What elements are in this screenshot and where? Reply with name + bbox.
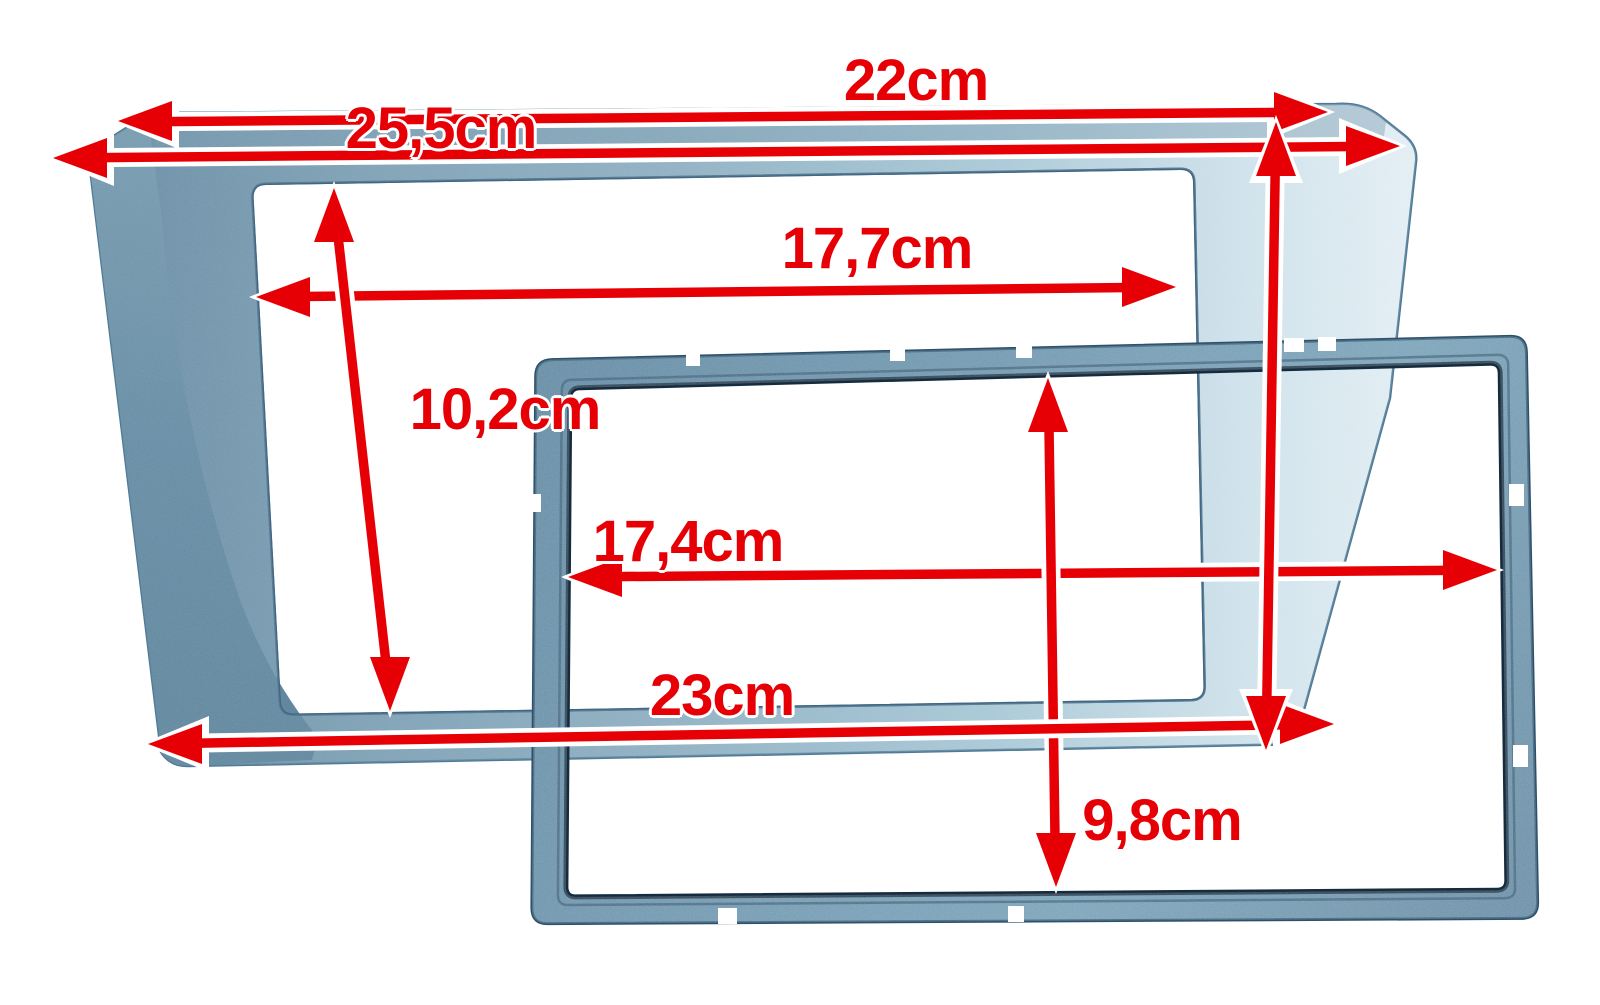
back-frame-opening-edge — [252, 169, 1204, 715]
dimension-label-back-opening-height: 10,2cm — [410, 381, 601, 439]
dimension-arrow-front-opening-height — [1021, 371, 1083, 894]
dimension-label-back-bottom-width: 23cm — [650, 667, 794, 725]
dimension-arrow-back-opening-width — [249, 259, 1183, 325]
dimension-label-back-top-width: 22cm — [844, 52, 988, 110]
dimension-label-back-opening-width: 17,7cm — [782, 220, 973, 278]
product-dimension-diagram: 22cm 25,5cm 17,7cm 10,2cm 17,4cm 23cm 9,… — [0, 0, 1600, 1005]
fascia-frames-illustration — [0, 0, 1600, 1005]
dimension-label-front-opening-width: 17,4cm — [593, 513, 784, 571]
dimension-arrow-back-opening-height — [307, 181, 417, 718]
dimension-label-front-opening-height: 9,8cm — [1082, 792, 1241, 850]
dimension-label-back-overall-width: 25,5cm — [346, 100, 537, 158]
